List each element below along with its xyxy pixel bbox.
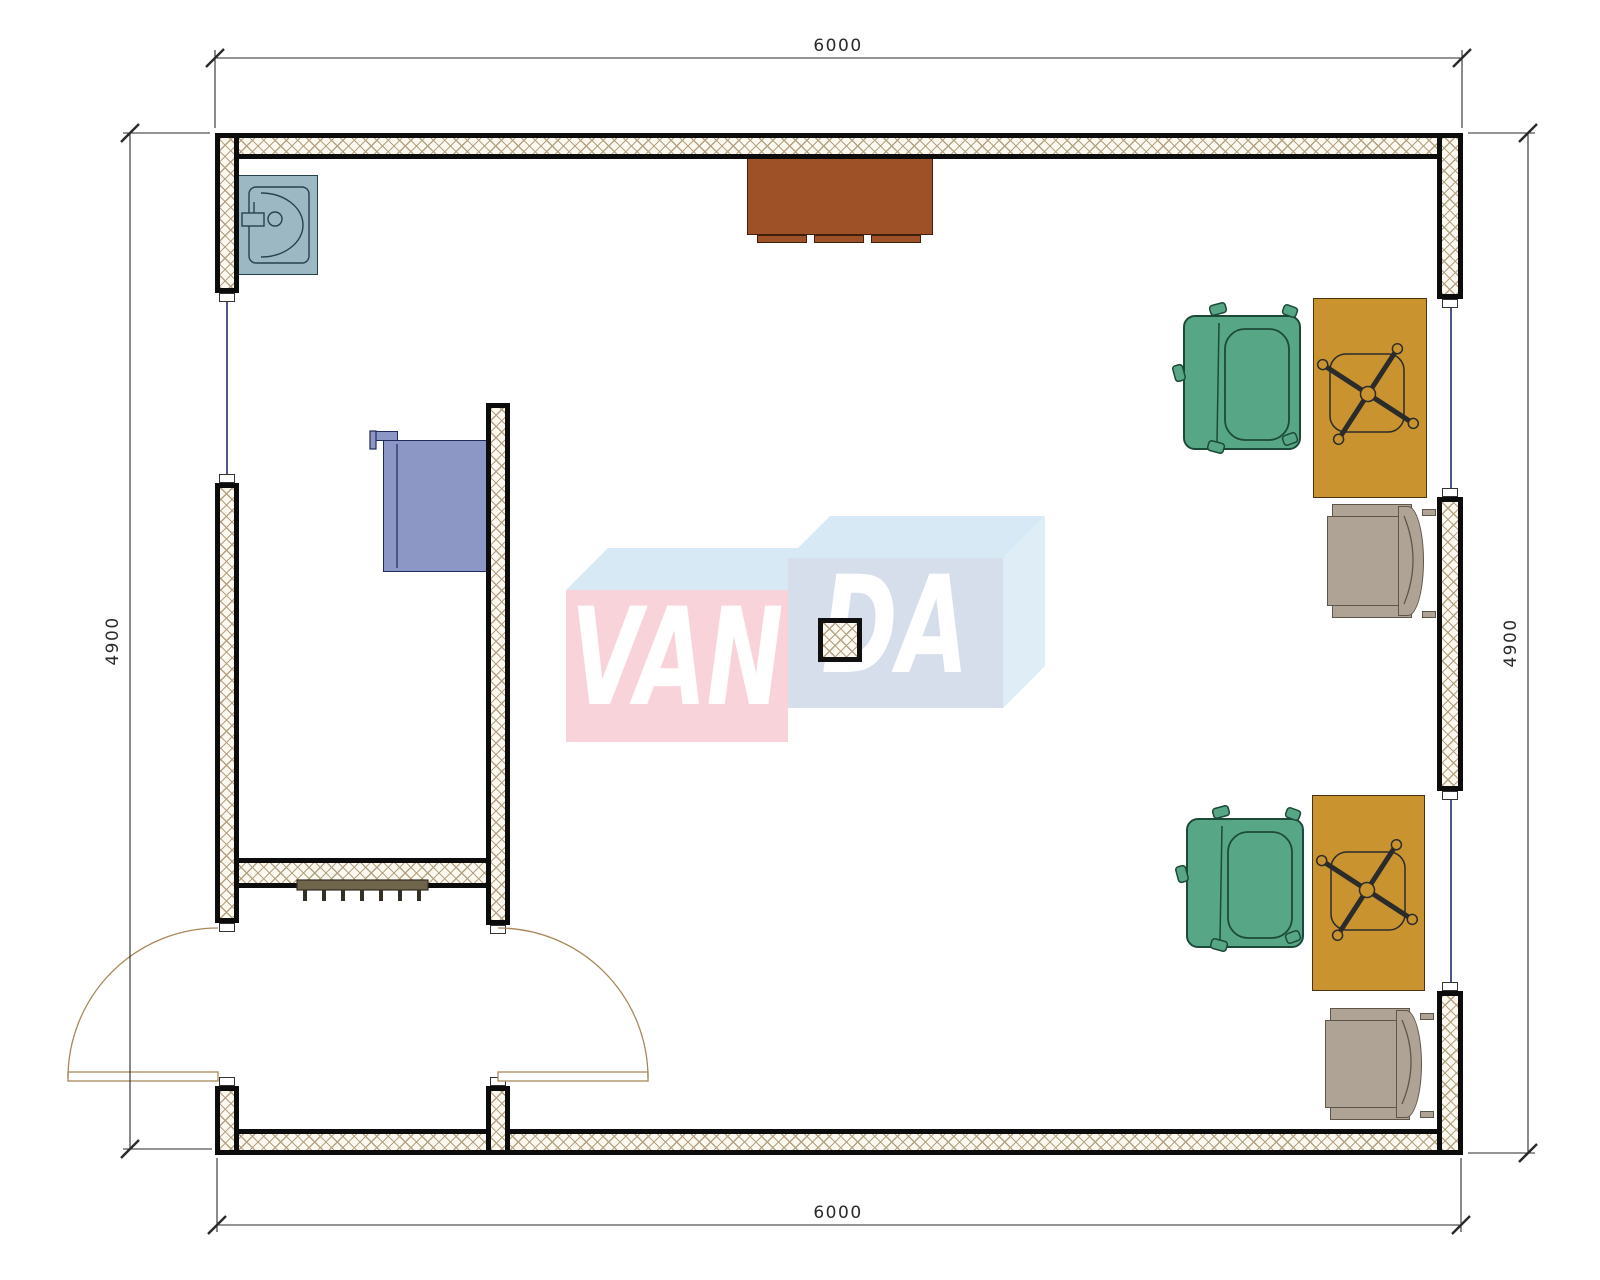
task-chair-lower-details <box>1175 805 1301 952</box>
dimension-label-bottom: 6000 <box>813 1203 862 1223</box>
dimension-top <box>206 49 1471 128</box>
dimension-label-top: 6000 <box>813 36 862 56</box>
dimension-left <box>121 124 212 1158</box>
detail-overlay <box>0 0 1600 1280</box>
task-chair-base-lower-icon <box>1285 808 1448 971</box>
floor-plan-canvas: VAN DA <box>0 0 1600 1280</box>
sink-bowl-and-faucet-icon <box>242 187 309 263</box>
door-right-leaf <box>498 928 648 1081</box>
dimension-label-left: 4900 <box>103 616 123 665</box>
task-chair-base-upper-icon <box>1286 312 1449 475</box>
radiator <box>297 880 428 901</box>
door-left-leaf <box>68 928 218 1081</box>
task-chair-upper-details <box>1172 302 1298 454</box>
appliance-door-line <box>370 431 397 568</box>
armchair-upper-back-curve <box>1404 516 1413 604</box>
dimension-label-right: 4900 <box>1501 618 1521 667</box>
armchair-lower-back-curve <box>1402 1020 1411 1104</box>
